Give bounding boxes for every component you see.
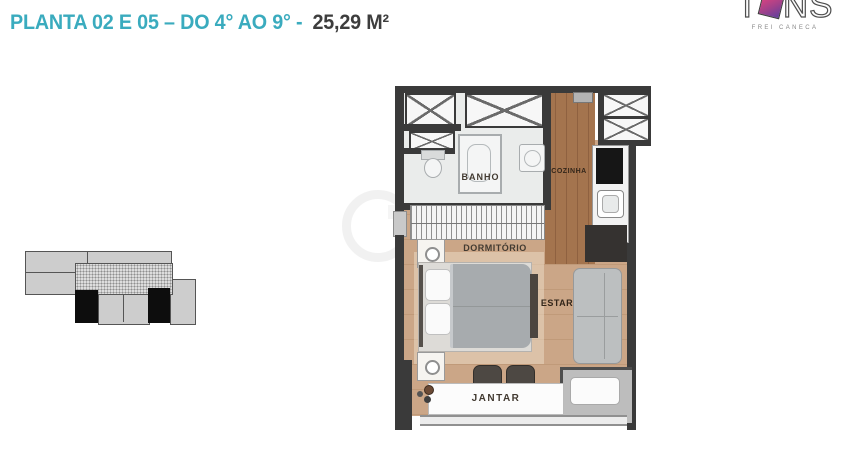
kitchen-sink-basin (602, 195, 619, 213)
dining-table: JANTAR (428, 383, 564, 415)
sofa-seam (577, 316, 618, 317)
kitchen-shelf (573, 92, 593, 103)
shaft-block-top-right (598, 86, 651, 146)
lamp-icon (425, 247, 440, 262)
decor-dot (424, 385, 434, 395)
ac-condenser (570, 377, 620, 405)
page: { "header": { "title_plan": "PLANTA 02 E… (0, 0, 850, 450)
bathroom-sink (519, 144, 545, 172)
logo-square-icon (758, 0, 785, 19)
shower (458, 134, 502, 194)
entry-door (393, 211, 407, 237)
cooktop (596, 148, 623, 184)
brand-logo-wordmark: T NS (726, 0, 844, 24)
keyplan-highlight-unit-05 (148, 288, 170, 323)
headboard (419, 265, 423, 347)
logo-letter-t: T (736, 0, 758, 26)
decor-dot (424, 396, 431, 403)
room-label-living: ESTAR (533, 298, 581, 308)
plan-title-text: PLANTA 02 E 05 – DO 4° AO 9° - (10, 11, 302, 34)
wall-left-bottom-chunk (395, 360, 412, 430)
room-label-bath: BANHO (433, 172, 528, 182)
wardrobe-rod (411, 223, 544, 224)
sofa-backrest-line (604, 273, 605, 359)
duvet-seam (453, 306, 531, 307)
shaft-box-1 (405, 93, 456, 128)
decor-dot (417, 391, 423, 397)
shaft-box-2 (465, 93, 544, 128)
page-title: PLANTA 02 E 05 – DO 4° AO 9° - 25,29 M² (10, 11, 389, 35)
pillow (425, 303, 451, 335)
room-label-kitchen: COZINHA (543, 168, 595, 175)
keyplan-block-right (170, 279, 196, 325)
plan-area-text: 25,29 M² (312, 11, 388, 34)
keyplan-divider (123, 292, 124, 322)
sink-basin (524, 150, 541, 167)
room-label-bedroom: DORMITÓRIO (445, 243, 545, 253)
floor-plan: JANTAR BANHO COZINHA DORMITÓRIO ESTAR (393, 84, 655, 432)
pillow (425, 269, 451, 301)
wardrobe (410, 205, 545, 240)
lamp-icon (425, 360, 440, 375)
room-label-dining: JANTAR (429, 384, 563, 414)
shaft-box-4 (602, 93, 650, 118)
building-keyplan (22, 246, 197, 330)
keyplan-highlight-unit-02 (75, 290, 98, 323)
keyplan-block-bottom-mid (98, 291, 150, 325)
sofa (573, 268, 622, 364)
logo-letters-ns: NS (783, 0, 834, 26)
nightstand-bottom (417, 352, 445, 381)
wall-shaft-mid (395, 124, 461, 131)
window-band (420, 415, 627, 426)
tv-cabinet (585, 225, 627, 262)
brand-logo: T NS FREI CANECA (726, 0, 844, 31)
bed (418, 262, 532, 352)
duvet (450, 264, 531, 348)
kitchen-sink (597, 190, 624, 218)
shaft-box-5 (602, 117, 650, 142)
